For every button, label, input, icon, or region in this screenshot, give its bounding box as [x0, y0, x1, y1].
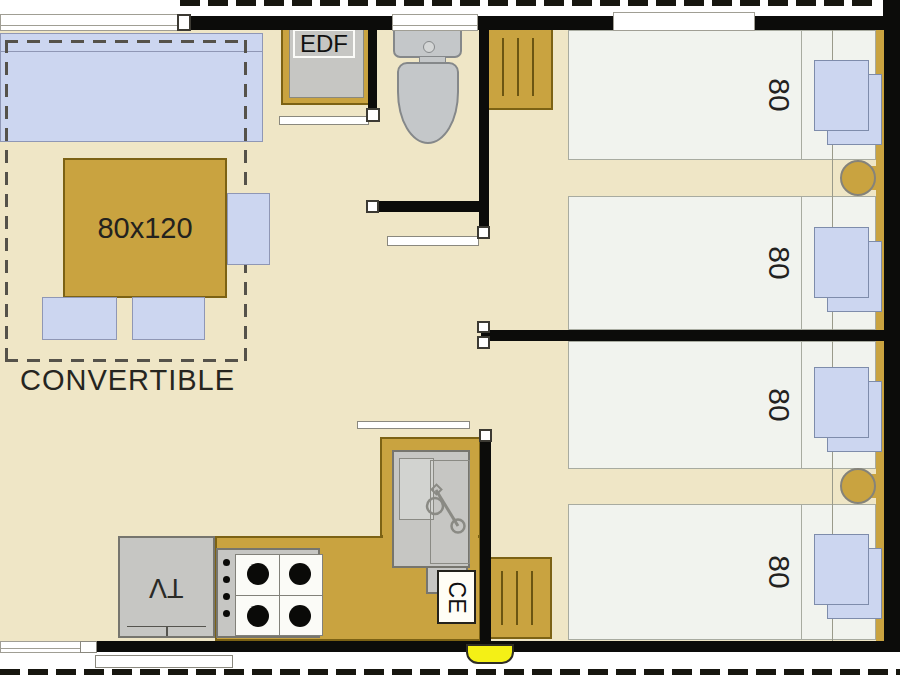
pillow [814, 367, 869, 438]
wall [190, 16, 392, 30]
wall [479, 28, 489, 226]
burner [289, 605, 311, 627]
kitchen-shelf [357, 421, 470, 429]
pillow [814, 227, 869, 298]
water-heater: CE [437, 570, 476, 624]
convertible-outline-top [5, 40, 247, 43]
chair [227, 193, 270, 265]
convertible-outline-left [5, 40, 8, 362]
door-jamb [80, 641, 97, 653]
door-jamb [479, 429, 492, 442]
chair [42, 297, 117, 340]
door-jamb [366, 200, 379, 213]
burner [247, 605, 269, 627]
wall [480, 442, 491, 641]
edf-label-box: EDF [293, 29, 355, 58]
toilet-flush-button [423, 41, 435, 53]
sofa [0, 33, 263, 142]
entrance-step [466, 644, 514, 664]
wall [489, 330, 884, 341]
bed-width-label: 80 [759, 385, 799, 425]
water-heater-label: CE [443, 581, 470, 613]
exterior-step-board [95, 655, 233, 668]
wall [478, 16, 613, 30]
edf-shelf [279, 116, 369, 125]
bedside-table [840, 468, 876, 504]
window [0, 14, 190, 31]
wall [377, 201, 489, 212]
floor-plan: 80x120 CONVERTIBLE EDF [0, 0, 900, 675]
edf-label: EDF [300, 30, 348, 58]
door-jamb [477, 336, 490, 349]
burner [247, 563, 269, 585]
convertible-label: CONVERTIBLE [20, 362, 235, 398]
stove-knob [223, 610, 230, 617]
terrace-hatch-bottom [0, 669, 900, 675]
wall [755, 16, 900, 30]
window [613, 12, 755, 31]
wall [884, 16, 900, 652]
stove-knob [223, 593, 230, 600]
stove-knob [223, 576, 230, 583]
sink-faucet [424, 480, 470, 536]
stove-knob [223, 559, 230, 566]
kitchen-sink [392, 450, 470, 568]
bedside-table [840, 160, 876, 196]
dining-table: 80x120 [63, 158, 227, 298]
door-jamb [477, 226, 490, 239]
bathroom-sliding-door [387, 236, 479, 246]
sofa-seam [1, 51, 262, 52]
door-jamb [177, 14, 191, 31]
pillow [814, 60, 869, 131]
tv-cabinet: TV [118, 536, 215, 638]
table-size-label: 80x120 [97, 212, 192, 245]
bed-width-label: 80 [759, 243, 799, 283]
wardrobe [484, 557, 552, 639]
wardrobe [484, 24, 553, 110]
burner [289, 563, 311, 585]
wall [368, 16, 377, 109]
stove [216, 548, 320, 638]
terrace-hatch-top [180, 0, 880, 6]
window [392, 14, 478, 31]
tv-label: TV [149, 572, 184, 603]
chair [132, 297, 205, 340]
door-jamb [366, 108, 380, 122]
pillow [814, 534, 869, 605]
door-jamb [477, 321, 490, 333]
bed-width-label: 80 [759, 75, 799, 115]
bed-width-label: 80 [759, 552, 799, 592]
